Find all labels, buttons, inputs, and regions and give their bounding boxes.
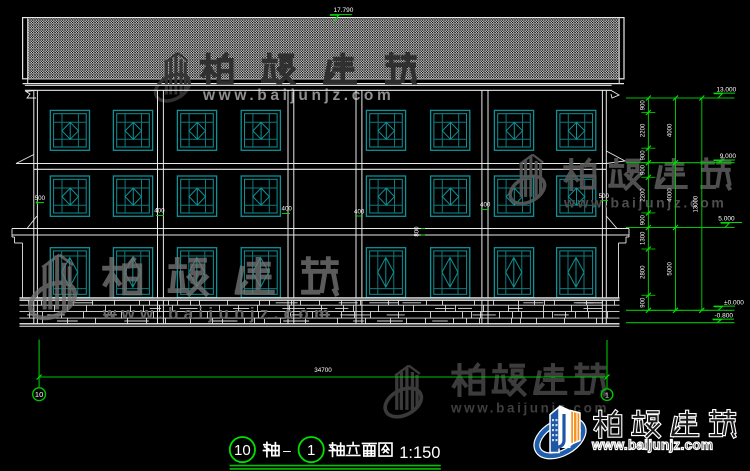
svg-text:17.790: 17.790: [334, 7, 354, 14]
svg-text:9.000: 9.000: [720, 153, 737, 160]
svg-text:400: 400: [354, 208, 365, 215]
svg-text:2200: 2200: [641, 123, 647, 137]
svg-text:1:150: 1:150: [399, 444, 440, 462]
svg-text:900: 900: [641, 150, 647, 161]
svg-text:400: 400: [282, 206, 293, 213]
svg-text:400: 400: [154, 208, 165, 215]
svg-text:1: 1: [605, 391, 609, 400]
svg-text:13000: 13000: [694, 195, 700, 212]
svg-text:900: 900: [641, 100, 647, 111]
svg-text:10: 10: [234, 442, 251, 459]
svg-text:10: 10: [35, 390, 43, 399]
svg-text:1: 1: [307, 442, 315, 459]
svg-text:800: 800: [415, 226, 421, 237]
svg-text:www.baijunjz.com: www.baijunjz.com: [202, 87, 394, 104]
svg-text:4000: 4000: [668, 188, 674, 202]
svg-text:±0.000: ±0.000: [724, 299, 744, 306]
svg-text:900: 900: [641, 215, 647, 226]
svg-text:900: 900: [641, 164, 647, 175]
svg-text:400: 400: [480, 202, 491, 209]
svg-text:2200: 2200: [641, 188, 647, 202]
svg-text:5.000: 5.000: [718, 216, 735, 223]
svg-text:500: 500: [35, 195, 46, 202]
svg-text:4000: 4000: [668, 123, 674, 137]
svg-text:13.000: 13.000: [716, 86, 736, 93]
svg-text:www.baijunjz.com: www.baijunjz.com: [102, 304, 335, 323]
svg-text:www.baijunjz.com: www.baijunjz.com: [450, 401, 609, 416]
svg-text:5000: 5000: [668, 262, 674, 276]
svg-text:-0.800: -0.800: [715, 312, 734, 319]
svg-text:–: –: [283, 442, 291, 458]
svg-text:900: 900: [641, 297, 647, 308]
svg-text:1300: 1300: [641, 231, 647, 245]
svg-text:2800: 2800: [641, 265, 647, 279]
svg-text:34700: 34700: [314, 367, 332, 374]
svg-text:www.baijunjz.com: www.baijunjz.com: [591, 438, 713, 453]
